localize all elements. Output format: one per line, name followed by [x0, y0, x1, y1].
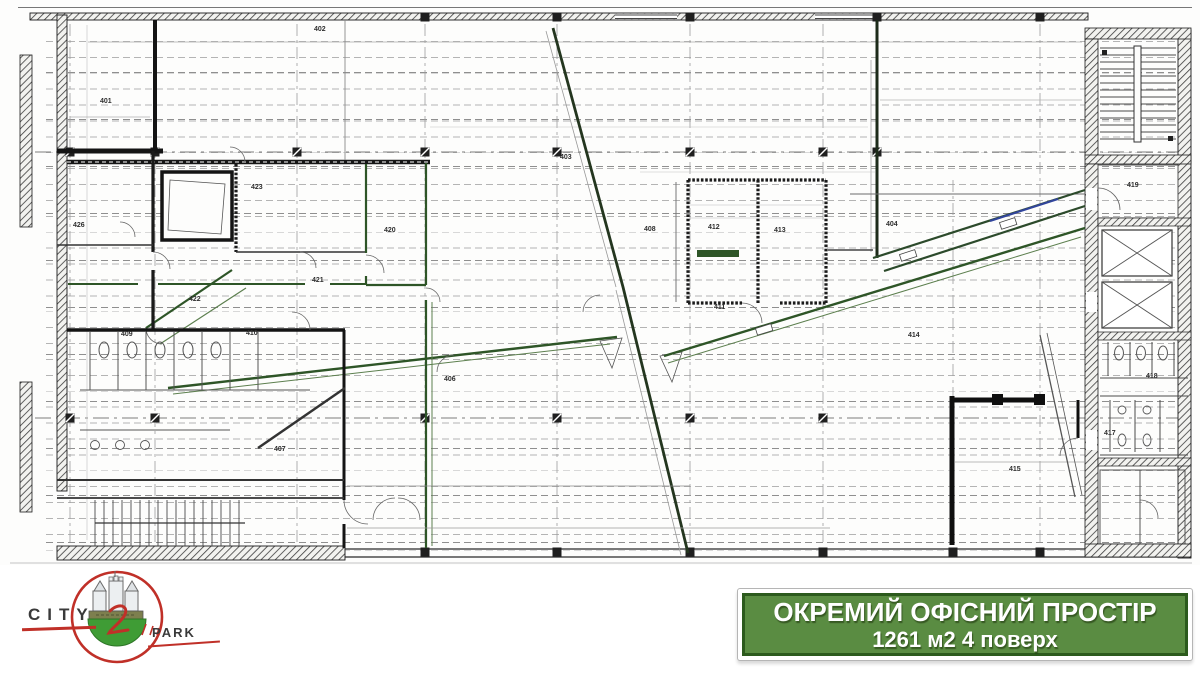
room-label-408: 408 [644, 226, 656, 233]
staircase-bottom-left [57, 486, 830, 546]
room-label-415: 415 [1009, 466, 1021, 473]
screenshot-root: 401 402 403 404 406 407 408 409 410 411 … [0, 0, 1200, 675]
logo-text-park: PARK [152, 625, 196, 640]
footer: CITY PARK ОКРЕМИЙ ОФІСНИЙ ПРОСТІР 1261 м… [0, 565, 1200, 675]
room-label-418: 418 [1146, 373, 1158, 380]
offer-title: ОКРЕМИЙ ОФІСНИЙ ПРОСТІР [773, 597, 1156, 627]
room-label-406: 406 [444, 376, 456, 383]
room-label-422: 422 [189, 296, 201, 303]
offer-subtitle: 1261 м2 4 поверх [872, 627, 1058, 653]
room-label-426: 426 [73, 222, 85, 229]
room-415-walls [952, 333, 1085, 545]
offer-banner-inner: ОКРЕМИЙ ОФІСНИЙ ПРОСТІР 1261 м2 4 поверх [742, 593, 1188, 656]
room-label-407: 407 [274, 446, 286, 453]
room-label-420: 420 [384, 227, 396, 234]
room-label-419: 419 [1127, 182, 1139, 189]
room-label-423: 423 [251, 184, 263, 191]
room-label-402: 402 [314, 26, 326, 33]
room-label-409: 409 [121, 331, 133, 338]
room-label-421: 421 [312, 277, 324, 284]
room-label-411: 411 [714, 304, 725, 311]
left-rooms-walls [57, 20, 440, 548]
room-label-414: 414 [908, 332, 920, 339]
room-label-410: 410 [246, 330, 258, 337]
room-label-417: 417 [1104, 430, 1116, 437]
diagonal-wall-main [546, 28, 688, 555]
rooms-412-413 [640, 172, 875, 323]
room-label-403: 403 [560, 154, 572, 161]
room-label-404: 404 [886, 221, 898, 228]
offer-banner: ОКРЕМИЙ ОФІСНИЙ ПРОСТІР 1261 м2 4 поверх [737, 588, 1193, 661]
right-service-strip [1085, 164, 1191, 557]
outer-walls [20, 13, 1191, 560]
staircase-top-right [1085, 28, 1191, 164]
room-label-413: 413 [774, 227, 786, 234]
castle-icon [89, 571, 143, 619]
room-label-412: 412 [708, 224, 720, 231]
city-park-logo: CITY PARK [14, 569, 224, 673]
room-422-walls [146, 270, 246, 344]
hall-walls [828, 20, 1085, 271]
floor-plan: 401 402 403 404 406 407 408 409 410 411 … [0, 0, 1200, 565]
logo-text-city: CITY [28, 605, 95, 625]
floor-plan-drawing [0, 0, 1200, 565]
room-label-401: 401 [100, 98, 112, 105]
